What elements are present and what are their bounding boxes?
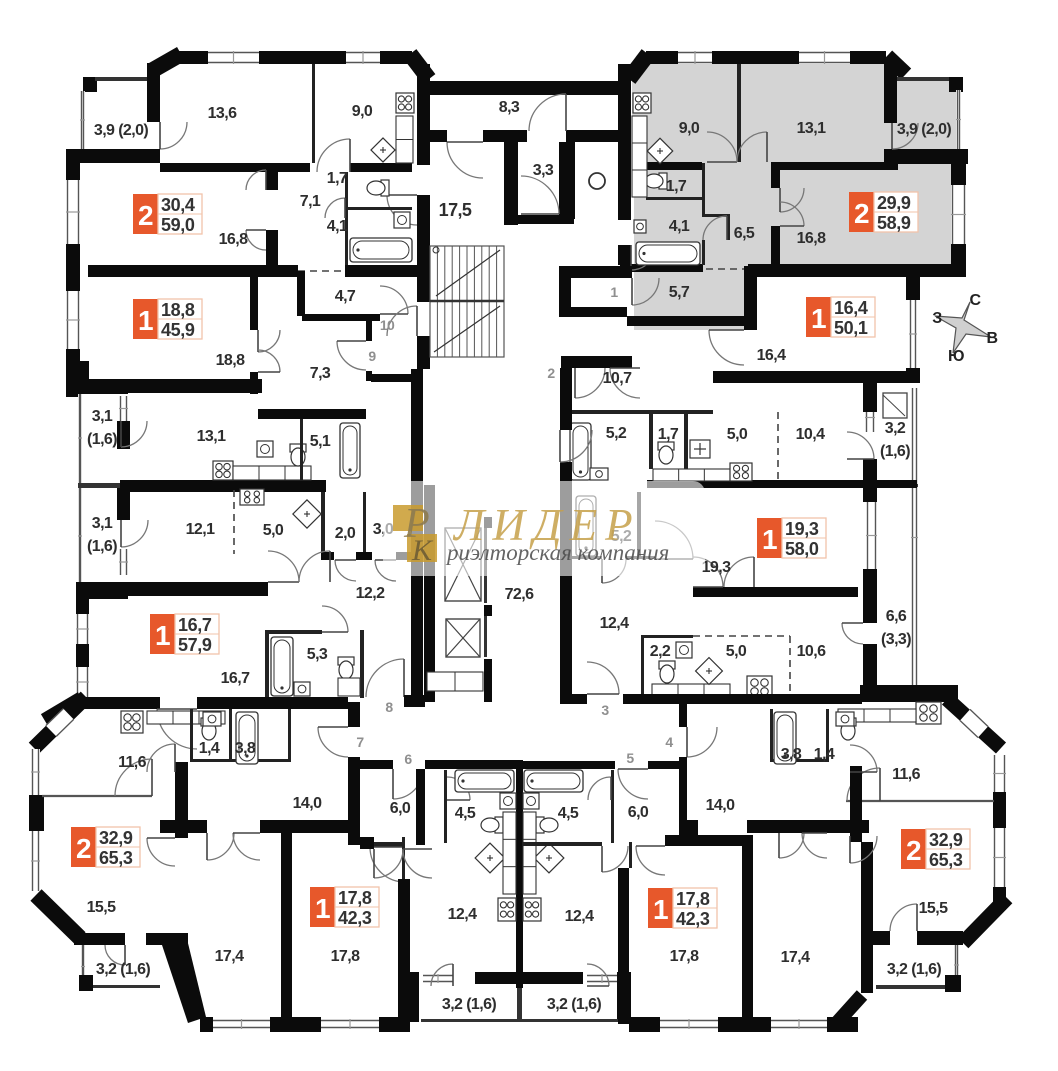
svg-text:50,1: 50,1 — [834, 318, 868, 338]
svg-text:7,1: 7,1 — [300, 193, 321, 210]
svg-text:3,2 (1,6): 3,2 (1,6) — [547, 996, 601, 1013]
svg-text:(1,6): (1,6) — [880, 443, 910, 460]
svg-text:65,3: 65,3 — [99, 848, 133, 868]
svg-text:9,0: 9,0 — [352, 103, 373, 120]
svg-text:42,3: 42,3 — [338, 908, 372, 928]
svg-text:5,7: 5,7 — [669, 284, 690, 301]
svg-text:6,0: 6,0 — [390, 800, 411, 817]
svg-text:6,0: 6,0 — [628, 804, 649, 821]
svg-text:1: 1 — [610, 284, 618, 300]
svg-text:3,1: 3,1 — [92, 408, 113, 425]
svg-text:17,5: 17,5 — [439, 200, 472, 220]
svg-text:65,3: 65,3 — [929, 850, 963, 870]
svg-text:16,8: 16,8 — [797, 230, 826, 247]
svg-text:19,3: 19,3 — [702, 559, 731, 576]
svg-text:2: 2 — [547, 365, 555, 381]
svg-text:6,5: 6,5 — [734, 225, 755, 242]
svg-text:13,1: 13,1 — [797, 120, 826, 137]
svg-text:13,6: 13,6 — [208, 105, 237, 122]
svg-text:3,8: 3,8 — [235, 740, 256, 757]
svg-text:10,6: 10,6 — [797, 643, 826, 660]
svg-text:30,4: 30,4 — [161, 195, 195, 215]
svg-text:Ю: Ю — [948, 348, 964, 365]
svg-text:18,8: 18,8 — [216, 352, 245, 369]
svg-text:5,0: 5,0 — [726, 643, 747, 660]
svg-text:12,1: 12,1 — [186, 521, 215, 538]
svg-text:16,8: 16,8 — [219, 231, 248, 248]
svg-text:3,8: 3,8 — [781, 746, 802, 763]
svg-text:32,9: 32,9 — [99, 828, 133, 848]
svg-text:17,8: 17,8 — [670, 948, 699, 965]
svg-text:1: 1 — [315, 893, 330, 924]
svg-text:1,7: 1,7 — [666, 178, 687, 195]
svg-text:16,4: 16,4 — [834, 298, 868, 318]
svg-text:4,7: 4,7 — [335, 288, 356, 305]
svg-text:5,1: 5,1 — [310, 433, 331, 450]
svg-text:4,1: 4,1 — [327, 218, 348, 235]
svg-text:2: 2 — [138, 200, 153, 231]
svg-text:1: 1 — [653, 894, 668, 925]
svg-text:45,9: 45,9 — [161, 320, 195, 340]
svg-text:В: В — [987, 330, 998, 347]
svg-text:12,4: 12,4 — [565, 908, 594, 925]
svg-text:58,9: 58,9 — [877, 213, 911, 233]
svg-text:17,4: 17,4 — [215, 948, 244, 965]
svg-text:14,0: 14,0 — [706, 797, 735, 814]
svg-text:1: 1 — [138, 305, 153, 336]
svg-text:1,7: 1,7 — [327, 170, 348, 187]
svg-text:16,4: 16,4 — [757, 347, 786, 364]
svg-text:1,4: 1,4 — [199, 740, 220, 757]
svg-text:3,1: 3,1 — [92, 515, 113, 532]
svg-text:12,4: 12,4 — [600, 615, 629, 632]
svg-text:3,9 (2,0): 3,9 (2,0) — [94, 122, 148, 139]
svg-text:13,1: 13,1 — [197, 428, 226, 445]
svg-text:72,6: 72,6 — [505, 586, 534, 603]
svg-text:2: 2 — [906, 835, 921, 866]
svg-text:16,7: 16,7 — [221, 670, 250, 687]
svg-text:8: 8 — [385, 699, 393, 715]
svg-text:4: 4 — [665, 734, 673, 750]
svg-text:15,5: 15,5 — [87, 899, 116, 916]
svg-text:1: 1 — [155, 620, 170, 651]
svg-text:3,2 (1,6): 3,2 (1,6) — [442, 996, 496, 1013]
svg-text:8,3: 8,3 — [499, 99, 520, 116]
svg-text:5,0: 5,0 — [263, 522, 284, 539]
svg-text:42,3: 42,3 — [676, 909, 710, 929]
svg-text:3: 3 — [601, 702, 609, 718]
svg-text:(3,3): (3,3) — [881, 631, 911, 648]
svg-text:2,0: 2,0 — [335, 525, 356, 542]
svg-text:5,0: 5,0 — [727, 426, 748, 443]
svg-text:11,6: 11,6 — [118, 754, 147, 771]
svg-text:К: К — [411, 534, 434, 567]
svg-text:1,7: 1,7 — [658, 426, 679, 443]
svg-text:3,2 (1,6): 3,2 (1,6) — [96, 961, 150, 978]
svg-text:32,9: 32,9 — [929, 830, 963, 850]
svg-text:18,8: 18,8 — [161, 300, 195, 320]
svg-text:17,8: 17,8 — [331, 948, 360, 965]
svg-text:1,4: 1,4 — [814, 746, 835, 763]
svg-text:17,4: 17,4 — [781, 949, 810, 966]
svg-text:5,3: 5,3 — [307, 646, 328, 663]
svg-text:1: 1 — [811, 303, 826, 334]
svg-text:6: 6 — [404, 751, 412, 767]
svg-text:9: 9 — [368, 348, 376, 364]
svg-text:(1,6): (1,6) — [87, 431, 117, 448]
svg-text:12,2: 12,2 — [356, 585, 385, 602]
svg-text:9,0: 9,0 — [679, 120, 700, 137]
svg-text:3,9 (2,0): 3,9 (2,0) — [897, 121, 951, 138]
svg-text:17,8: 17,8 — [338, 888, 372, 908]
svg-text:1: 1 — [762, 524, 777, 555]
svg-text:15,5: 15,5 — [919, 900, 948, 917]
svg-text:2: 2 — [76, 833, 91, 864]
svg-text:10,7: 10,7 — [603, 370, 632, 387]
svg-text:11,6: 11,6 — [892, 766, 921, 783]
svg-text:риэлторская компания: риэлторская компания — [445, 540, 669, 565]
svg-text:4,5: 4,5 — [558, 805, 579, 822]
svg-text:59,0: 59,0 — [161, 215, 195, 235]
svg-text:(1,6): (1,6) — [87, 538, 117, 555]
svg-text:З: З — [932, 310, 942, 327]
svg-text:5,2: 5,2 — [606, 425, 627, 442]
svg-text:3,2 (1,6): 3,2 (1,6) — [887, 961, 941, 978]
svg-text:58,0: 58,0 — [785, 539, 819, 559]
svg-text:7: 7 — [356, 734, 364, 750]
svg-text:С: С — [970, 292, 982, 309]
svg-text:4,1: 4,1 — [669, 218, 690, 235]
svg-text:4,5: 4,5 — [455, 805, 476, 822]
svg-text:3,3: 3,3 — [533, 162, 554, 179]
svg-text:2,2: 2,2 — [650, 643, 671, 660]
svg-text:3,2: 3,2 — [885, 420, 906, 437]
svg-text:7,3: 7,3 — [310, 365, 331, 382]
svg-text:6,6: 6,6 — [886, 608, 907, 625]
svg-text:5: 5 — [626, 750, 634, 766]
svg-text:19,3: 19,3 — [785, 519, 819, 539]
svg-text:29,9: 29,9 — [877, 193, 911, 213]
svg-text:16,7: 16,7 — [178, 615, 212, 635]
svg-text:12,4: 12,4 — [448, 906, 477, 923]
svg-text:17,8: 17,8 — [676, 889, 710, 909]
svg-text:14,0: 14,0 — [293, 795, 322, 812]
svg-text:10,4: 10,4 — [796, 426, 825, 443]
svg-text:10: 10 — [380, 317, 395, 333]
svg-text:2: 2 — [854, 198, 869, 229]
svg-text:57,9: 57,9 — [178, 635, 212, 655]
